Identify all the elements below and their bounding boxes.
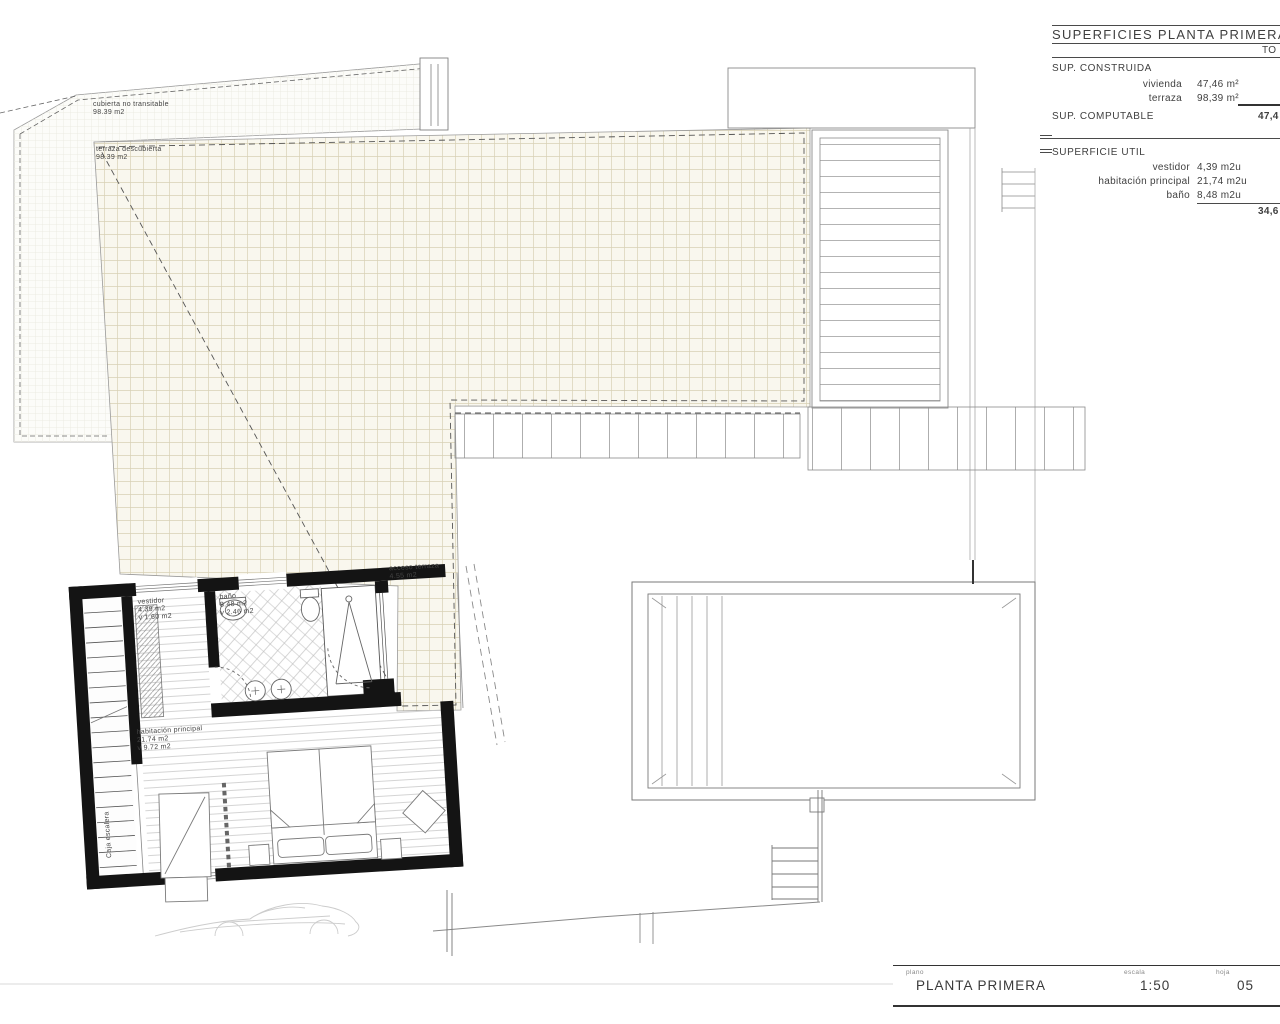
table-rule <box>1052 57 1280 58</box>
section-sup-computable: SUP. COMPUTABLE <box>1052 111 1154 122</box>
plano-value: PLANTA PRIMERA <box>916 978 1046 993</box>
escala-value: 1:50 <box>1140 978 1170 993</box>
pool <box>632 560 1035 812</box>
row-value: 21,74 m2u <box>1197 176 1247 187</box>
titleblock-rule-top <box>893 965 1280 966</box>
table-title: SUPERFICIES PLANTA PRIMERA <box>1052 27 1280 42</box>
svg-text:98.39 m2: 98.39 m2 <box>96 154 128 161</box>
hoja-label: hoja <box>1216 969 1230 976</box>
mirror <box>159 793 212 902</box>
row-label: baño <box>1080 190 1190 201</box>
tick <box>1040 135 1052 136</box>
row-label: terraza <box>1090 93 1182 104</box>
table-rule <box>1052 25 1280 26</box>
tick <box>1040 152 1052 153</box>
row-label: vivienda <box>1090 79 1182 90</box>
titleblock-rule-bottom <box>893 1005 1280 1007</box>
louver-panel <box>820 138 940 401</box>
car-sketch <box>155 904 359 936</box>
shower-head <box>346 596 352 602</box>
floor-plan-sheet: vestidor 4.39 m2 v 1.60 m2 baño 8.48 m2 … <box>0 0 1280 1024</box>
sum-rule <box>1197 203 1280 204</box>
section-superficie-util: SUPERFICIE UTIL <box>1052 147 1145 158</box>
nightstand-left <box>249 844 270 865</box>
deck-band <box>455 407 1085 470</box>
row-label: vestidor <box>1080 162 1190 173</box>
row-value: 47,46 m² <box>1197 79 1239 90</box>
row-value: 4,39 m2u <box>1197 162 1241 173</box>
toilet-cistern <box>300 589 318 598</box>
roof-stair-block <box>420 58 448 130</box>
svg-text:98.39 m2: 98.39 m2 <box>93 109 125 116</box>
cubierta-label: cubierta no transitable <box>93 101 169 108</box>
pillow-left <box>277 837 324 858</box>
table-total-header: TO <box>1262 45 1276 56</box>
sum-rule <box>1238 104 1280 106</box>
escala-label: escala <box>1124 969 1145 976</box>
garden-stair <box>433 790 822 956</box>
row-label: habitación principal <box>1080 176 1190 187</box>
terraza-label: terraza descubierta <box>96 146 162 153</box>
row-value: 8,48 m2u <box>1197 190 1241 201</box>
pillow-right <box>325 834 372 855</box>
table-rule <box>1040 138 1280 139</box>
exterior-stair-top <box>1002 168 1035 212</box>
tick <box>1040 149 1052 150</box>
bano-label: baño <box>219 593 236 601</box>
table-rule <box>1052 43 1280 44</box>
nightstand-right <box>381 838 402 859</box>
plano-label: plano <box>906 969 924 976</box>
computable-total: 47,4 <box>1258 111 1279 122</box>
util-total: 34,6 <box>1258 206 1279 217</box>
section-sup-construida: SUP. CONSTRUIDA <box>1052 63 1152 74</box>
row-value: 98,39 m² <box>1197 93 1239 104</box>
hoja-value: 05 <box>1237 978 1254 993</box>
